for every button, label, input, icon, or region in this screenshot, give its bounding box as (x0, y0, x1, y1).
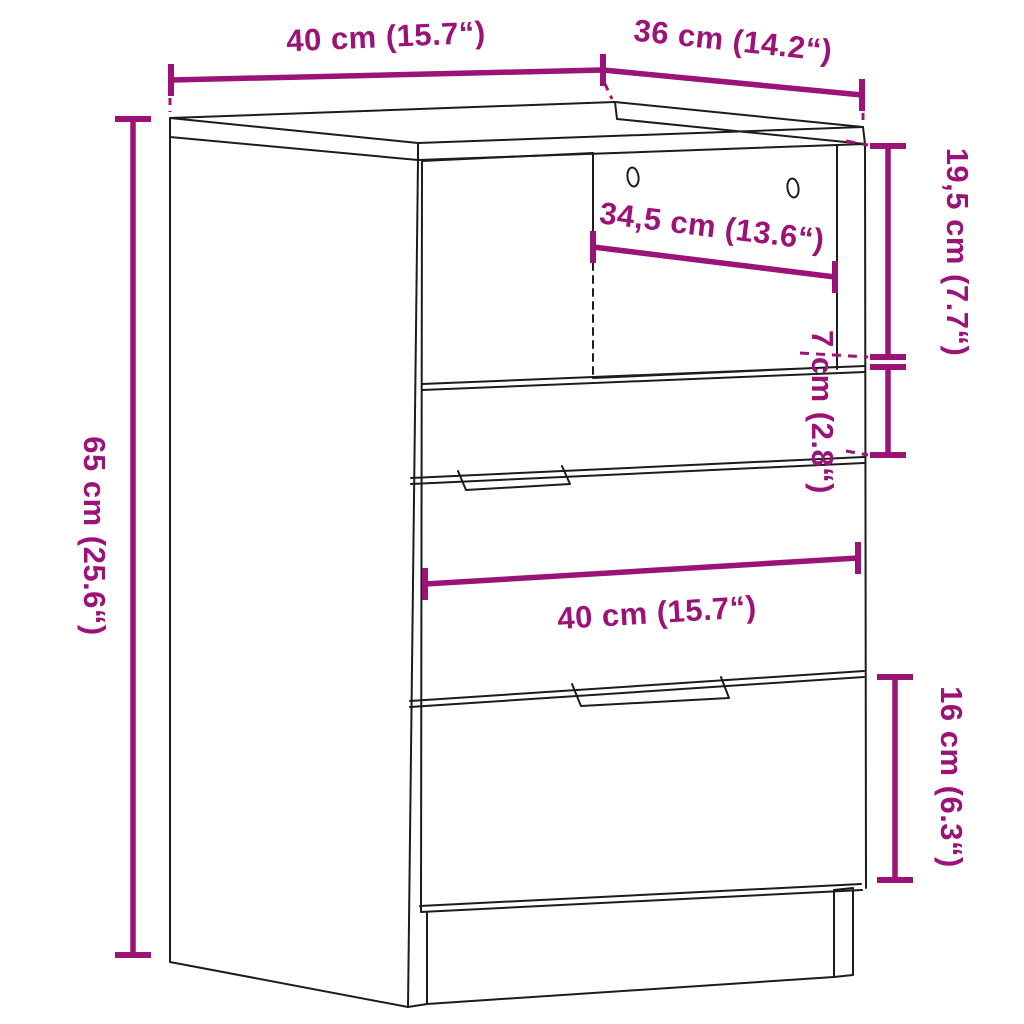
dimension-top-depth (603, 70, 863, 124)
dimension-drawer1-height (846, 367, 906, 455)
dimension-diagram: 40 cm (15.7“) 36 cm (14.2“) 65 cm (25.6“… (0, 0, 1024, 1024)
drawer1-bottom-seam (411, 457, 864, 484)
screw-hole-right (786, 178, 800, 198)
top-panel-top-face (170, 102, 863, 143)
niche-left-corner (422, 153, 593, 250)
drawer3-bottom-seam (420, 884, 862, 912)
dimension-top-width (170, 54, 612, 112)
front-right-leg (834, 888, 853, 977)
plinth-bottom-edge (427, 977, 834, 1004)
dimension-lines (115, 54, 913, 955)
dimension-height (115, 119, 151, 955)
dimension-label-drawer3-height: 16 cm (6.3“) (933, 686, 969, 868)
front-left-leg (408, 913, 427, 1007)
dimension-label-drawer1-height: 7 cm (2.8“) (804, 330, 840, 494)
dimension-front-width (425, 542, 858, 600)
screw-hole-left (626, 167, 640, 187)
front-right-edge (865, 144, 866, 888)
niche-shelf (422, 366, 865, 390)
cabinet-line-drawing (0, 0, 1024, 1024)
dimension-label-height: 65 cm (25.6“) (76, 436, 112, 636)
dimension-drawer3-height (877, 677, 913, 880)
drawer2-bottom-seam (410, 671, 864, 707)
side-panel (170, 137, 422, 1007)
dimension-label-niche-height: 19,5 cm (7.7“) (939, 148, 975, 357)
